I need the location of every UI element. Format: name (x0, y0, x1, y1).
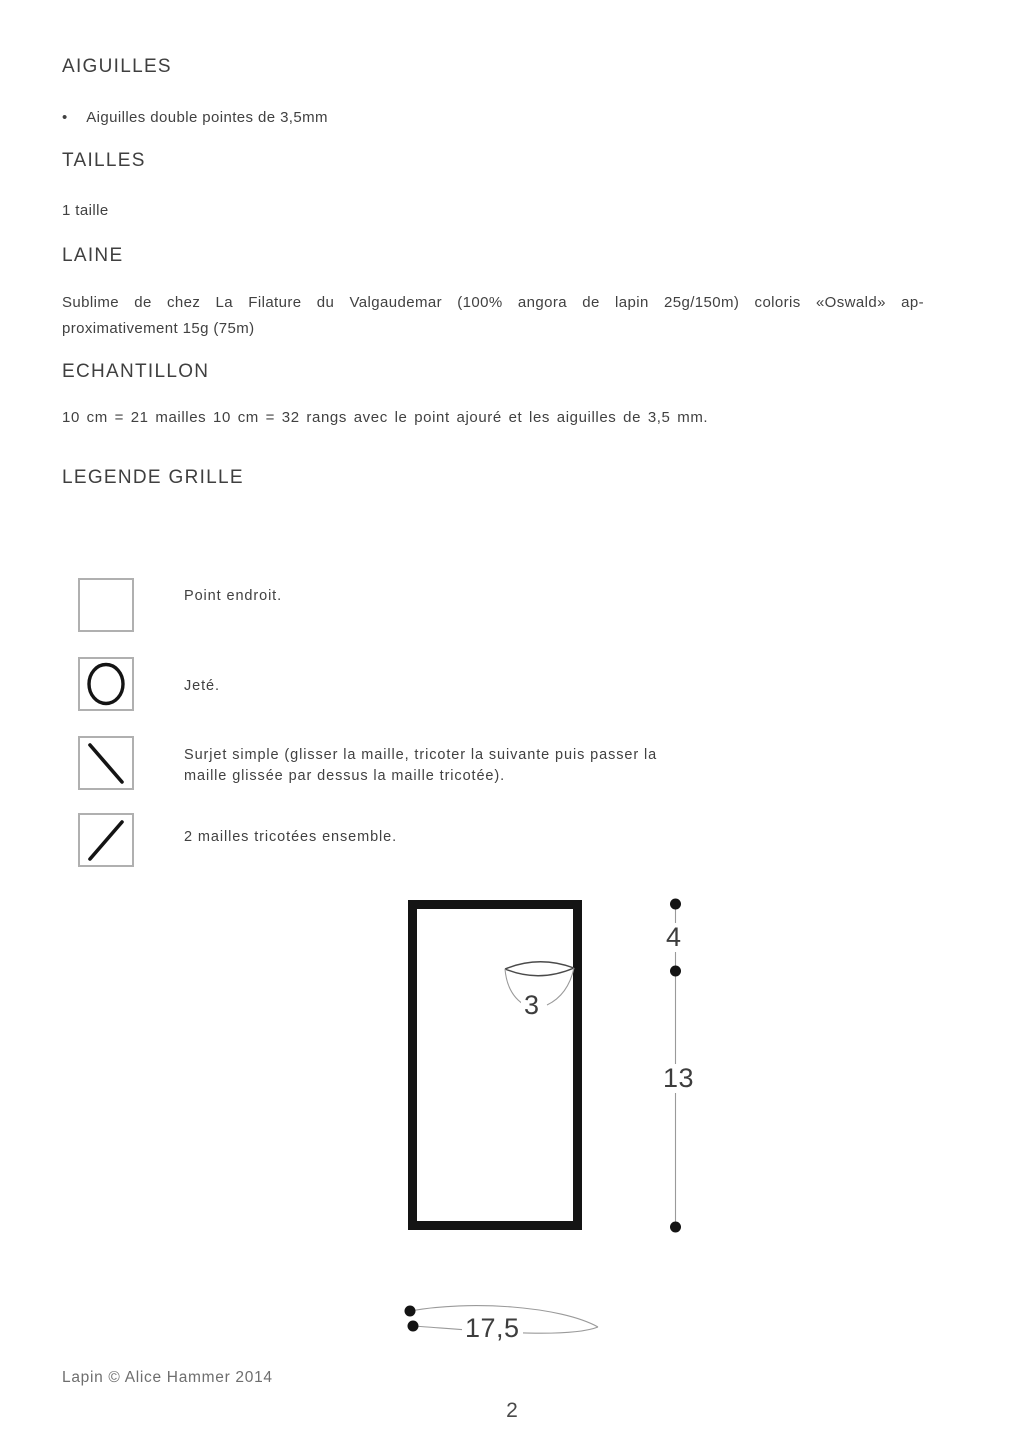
dimension-label-neck-width: 3 (521, 991, 543, 1020)
dimension-dot (408, 1321, 419, 1332)
legend-symbol-yarn-over (78, 657, 134, 711)
dimension-dot (670, 1222, 681, 1233)
legend-symbol-k2tog (78, 813, 134, 867)
footer-credit: Lapin © Alice Hammer 2014 (62, 1369, 273, 1387)
dimension-label-top-height: 4 (663, 923, 685, 952)
legend-symbol-surjet-simple (78, 736, 134, 790)
bullet-glyph: • (62, 109, 68, 126)
dimension-dot (670, 899, 681, 910)
heading-laine: LAINE (62, 245, 123, 267)
ssk-backslash-icon (80, 738, 132, 788)
legend-symbol-knit-stitch (78, 578, 134, 632)
dimension-dot (670, 966, 681, 977)
page-number: 2 (0, 1399, 1024, 1423)
dimension-label-bottom-width: 17,5 (462, 1314, 523, 1343)
legend-label-2-mailles: 2 mailles tricotées ensemble. (184, 827, 397, 848)
laine-paragraph-line2: proximativement 15g (75m) (62, 316, 924, 342)
yarn-over-circle-icon (80, 659, 132, 709)
laine-paragraph: Sublime de chez La Filature du Valgaudem… (62, 290, 924, 342)
legend-label-surjet-line2: maille glissée par dessus la maille tric… (184, 766, 684, 787)
document-page: AIGUILLES • Aiguilles double pointes de … (0, 0, 1024, 1448)
schematic-body-rectangle (413, 905, 578, 1226)
heading-aiguilles: AIGUILLES (62, 56, 172, 78)
laine-paragraph-line1: Sublime de chez La Filature du Valgaudem… (62, 290, 924, 316)
heading-tailles: TAILLES (62, 150, 146, 172)
dimension-label-side-height: 13 (660, 1064, 697, 1093)
legend-label-surjet-simple: Surjet simple (glisser la maille, tricot… (184, 745, 684, 787)
dimension-dot (405, 1306, 416, 1317)
k2tog-slash-icon (80, 815, 132, 865)
echantillon-body: 10 cm = 21 mailles 10 cm = 32 rangs avec… (62, 405, 708, 431)
legend-label-point-endroit: Point endroit. (184, 586, 282, 607)
bullet-item: • Aiguilles double pointes de 3,5mm (62, 105, 328, 131)
heading-echantillon: ECHANTILLON (62, 361, 209, 383)
heading-legende-grille: LEGENDE GRILLE (62, 467, 244, 489)
bullet-text: Aiguilles double pointes de 3,5mm (86, 105, 328, 131)
tailles-body: 1 taille (62, 198, 109, 224)
legend-label-jete: Jeté. (184, 676, 220, 697)
schematic-diagram (380, 880, 720, 1360)
legend-label-surjet-line1: Surjet simple (glisser la maille, tricot… (184, 745, 684, 766)
